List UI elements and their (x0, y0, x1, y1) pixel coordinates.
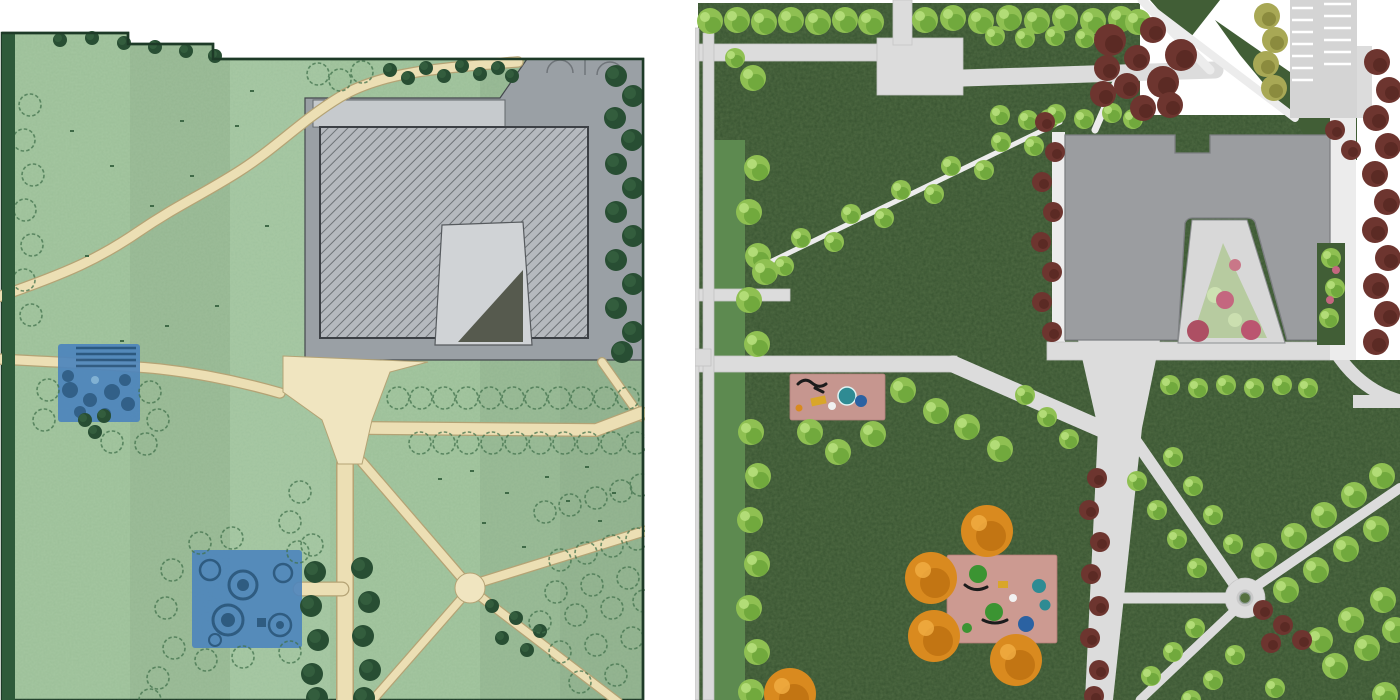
community-building (1065, 135, 1330, 343)
plan-comparison-canvas (0, 0, 1400, 700)
courtyard-east-bed (1317, 243, 1345, 345)
path-node (455, 573, 485, 603)
parking-lot (1290, 0, 1357, 118)
parking-building-zone (305, 59, 643, 360)
small-playground (790, 374, 885, 420)
street-sidewalk (695, 28, 714, 700)
roundabout-center (1237, 590, 1254, 607)
playground-path (695, 356, 957, 372)
right-plan-svg (695, 0, 1400, 700)
sidewalk-marker (695, 349, 711, 366)
large-playground (947, 555, 1057, 643)
left-site-plan-image[interactable] (0, 0, 645, 700)
upper-blue-activity-area (58, 344, 140, 422)
lower-blue-activity-area (192, 550, 302, 648)
right-site-plan-image[interactable] (695, 0, 1400, 700)
entry-plaza (877, 38, 963, 95)
left-plan-svg (0, 0, 645, 700)
